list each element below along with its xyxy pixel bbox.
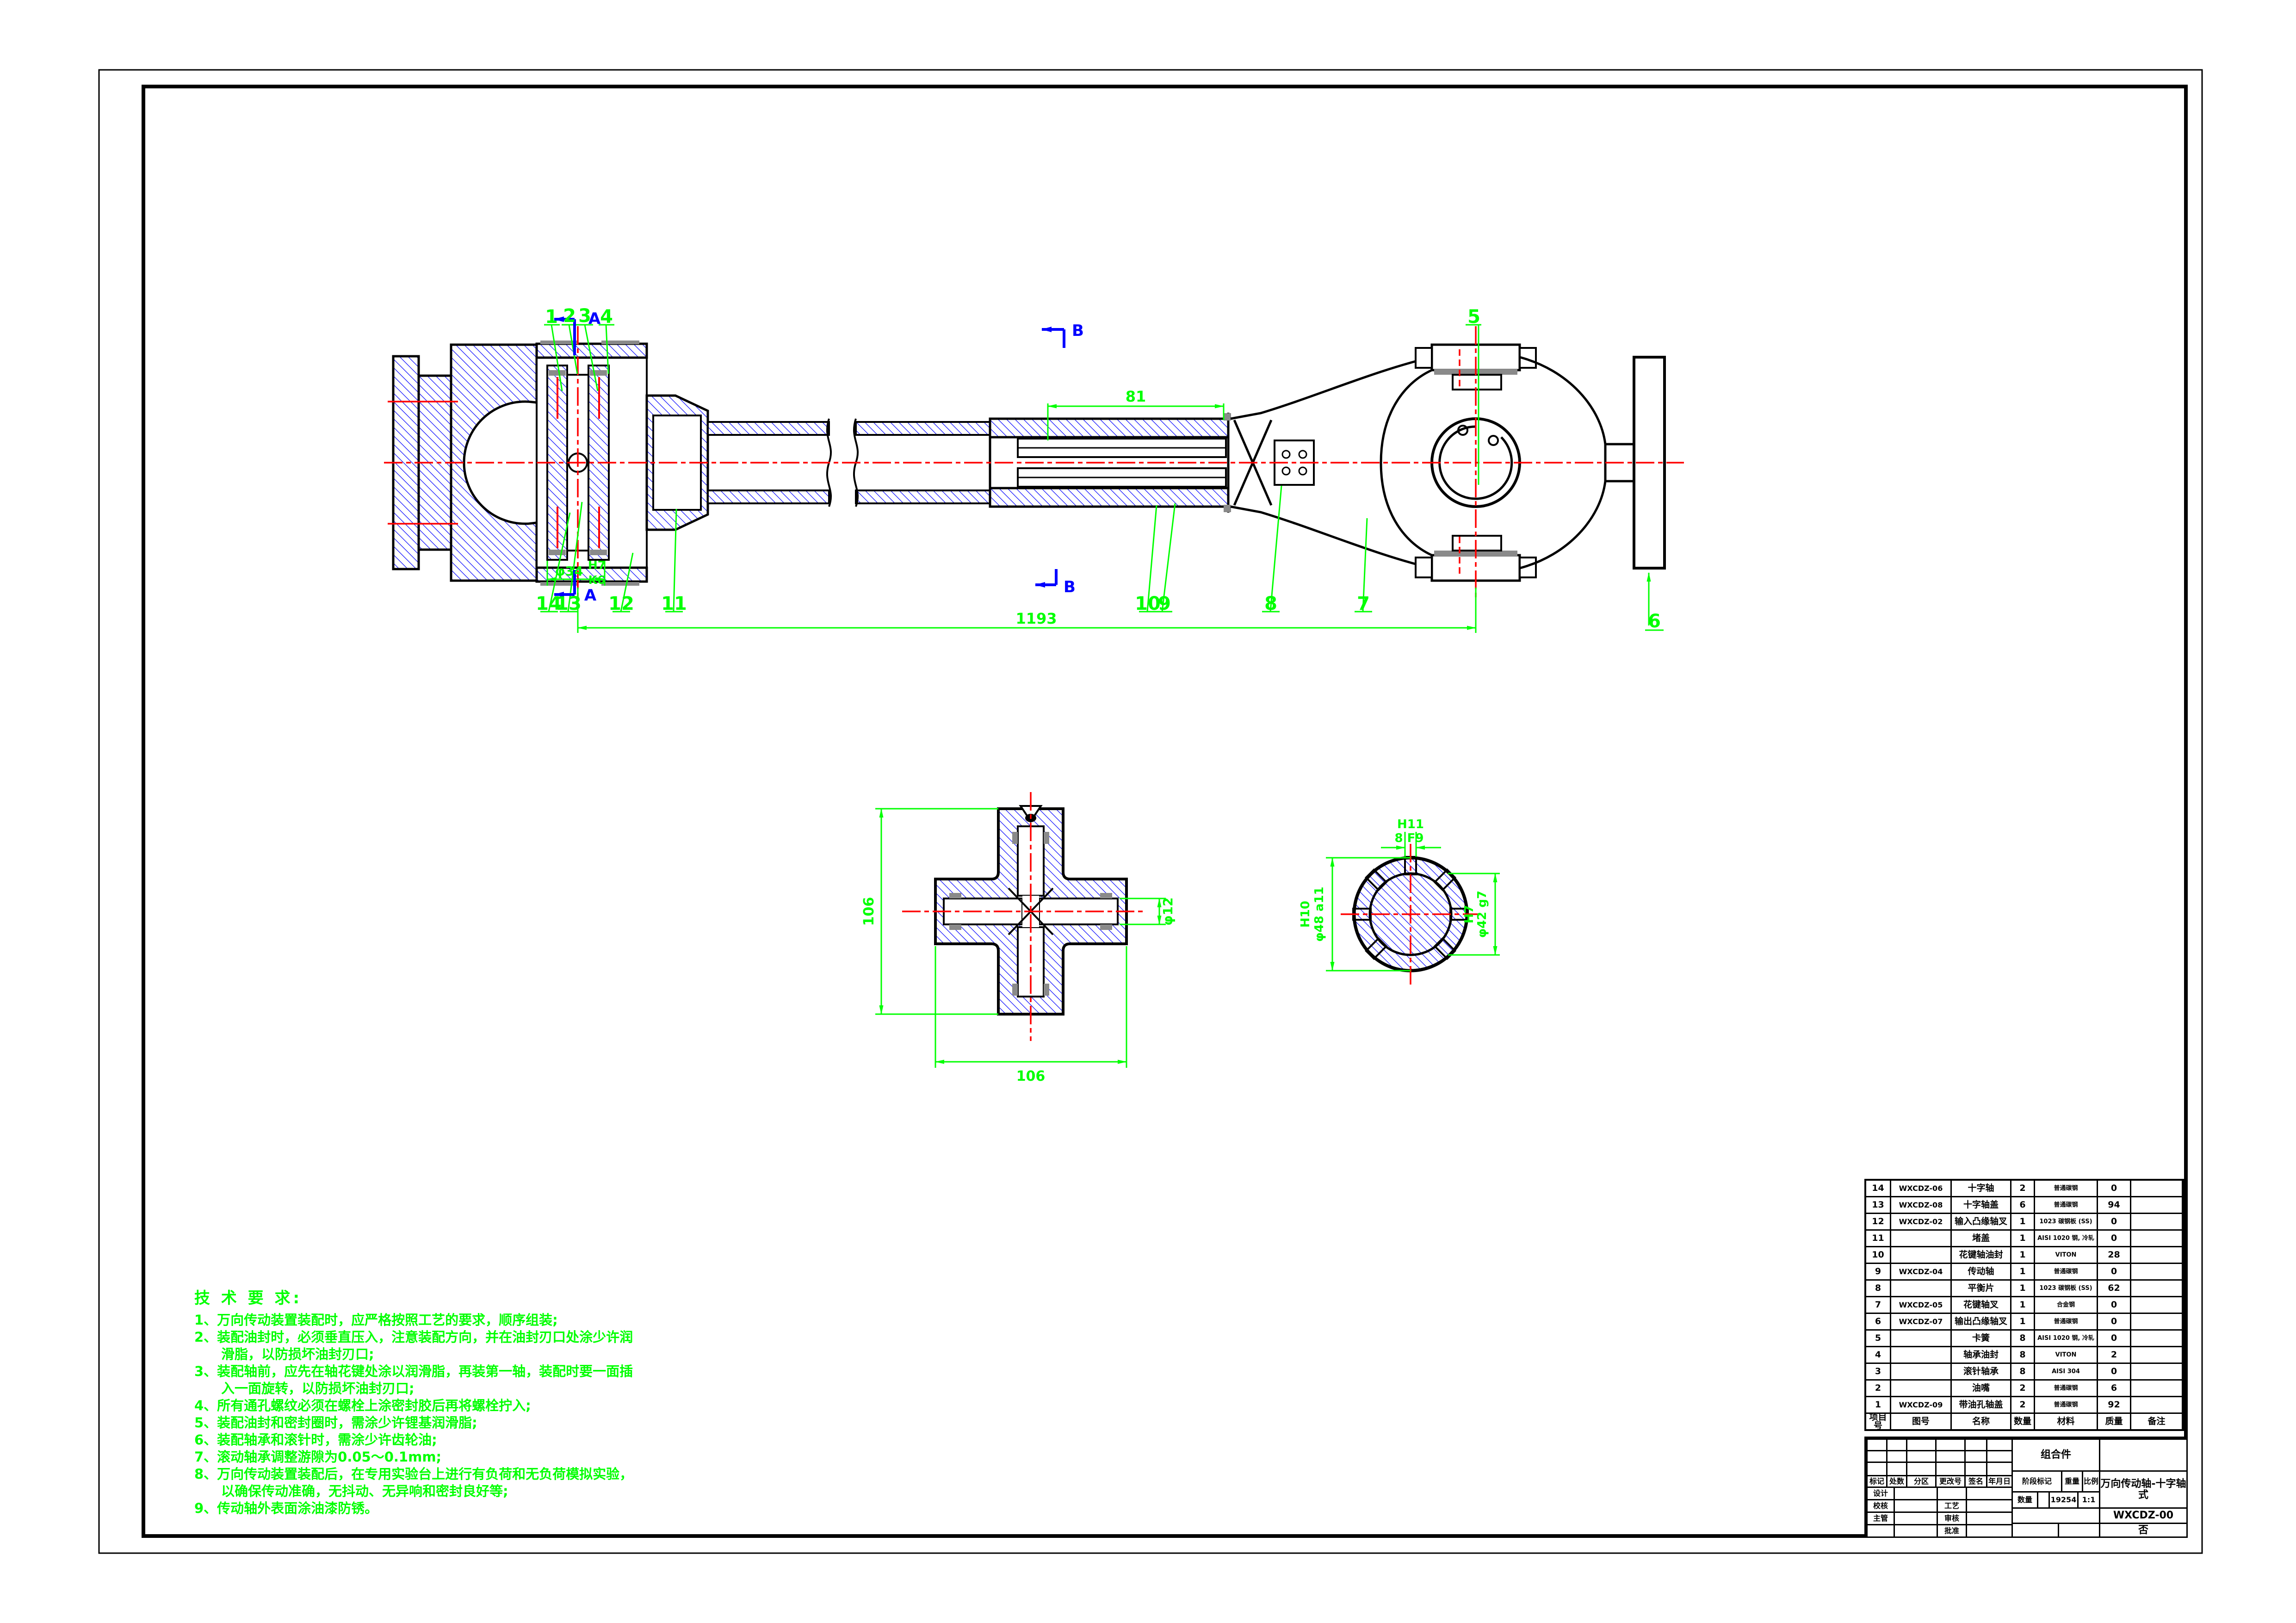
tech-item: 3、装配轴前，应先在轴花键处涂以润滑脂，再装第一轴，装配时要一面插入一面旋转，以… [194,1363,638,1397]
label-qty: 数量 [2011,1491,2038,1509]
bom-cell: 2 [2098,1347,2130,1363]
assembly-type: 组合件 [2011,1438,2100,1472]
label-design: 设计 [1866,1487,1895,1500]
label-change-no: 更改号 [1935,1475,1966,1488]
bom-cell [2131,1247,2182,1263]
bom-cell: 2 [2011,1397,2034,1412]
bom-cell: 94 [2098,1197,2130,1213]
bom-cell: 6 [2011,1197,2034,1213]
bom-cell: 输入凸缘轴叉 [1952,1214,2010,1229]
bom-cell [1891,1347,1950,1363]
bom-cell: 1 [2011,1281,2034,1296]
bom-cell: 8 [1866,1281,1890,1296]
bom-cell: 0 [2098,1181,2130,1196]
bom-cell: 传动轴 [1952,1264,2010,1279]
bom-cell: 1 [2011,1214,2034,1229]
dim-section-top-fit: H11 [1397,818,1424,831]
bom-cell: 0 [2098,1214,2130,1229]
bom-cell: 带油孔轴盖 [1952,1397,2010,1412]
dim-cross-vertical: 106 [861,897,877,926]
bom-cell: WXCDZ-04 [1891,1264,1950,1279]
revision-cell [1886,1462,1907,1476]
revision-cell [1935,1438,1966,1451]
bom-cell: AISI 1020 钢, 冷轧 [2035,1331,2097,1346]
bom-cell: 1 [2011,1231,2034,1246]
bom-cell: WXCDZ-08 [1891,1197,1950,1213]
sheet-flag: 否 [2099,1523,2188,1538]
bom-cell [1891,1331,1950,1346]
revision-cell [1866,1438,1888,1451]
section-a-bottom: A [584,586,597,605]
bom-cell: WXCDZ-07 [1891,1314,1950,1329]
bom-cell: 8 [2011,1364,2034,1379]
balloon-6: 6 [1648,611,1661,632]
bom-cell: AISI 1020 钢, 冷轧 [2035,1231,2097,1246]
bom-cell [2131,1314,2182,1329]
bom-cell: 7 [1866,1297,1890,1313]
bom-cell [1891,1281,1950,1296]
bom-cell: AISI 304 [2035,1364,2097,1379]
revision-cell [1986,1462,2013,1476]
balloon-13: 13 [556,593,582,614]
tb-empty-cell [2099,1438,2188,1472]
bom-cell: 0 [2098,1231,2130,1246]
label-mark: 标记 [1866,1475,1888,1488]
spline-section-view [1341,844,1480,985]
dim-cross-horizontal: 106 [1016,1068,1046,1084]
bom-cell: VITON [2035,1247,2097,1263]
bom-cell: WXCDZ-02 [1891,1214,1950,1229]
bom-cell: 8 [2011,1347,2034,1363]
dim-spline-length: 81 [1126,388,1146,405]
technical-requirements: 技 术 要 求: 1、万向传动装置装配时，应严格按照工艺的要求，顺序组装; 2、… [194,1285,638,1517]
sig-cell [1937,1487,1967,1500]
bom-cell [1891,1247,1950,1263]
bom-cell: 9 [1866,1264,1890,1279]
bom-header-mass: 质量 [2098,1414,2130,1429]
tech-item: 6、装配轴承和滚针时，需涂少许齿轮油; [194,1431,638,1449]
bom-cell: 2 [2011,1181,2034,1196]
tech-item: 1、万向传动装置装配时，应严格按照工艺的要求，顺序组装; [194,1312,638,1329]
bom-cell: 92 [2098,1397,2130,1412]
bom-cell: 1 [2011,1314,2034,1329]
bom-header-name: 名称 [1952,1414,2010,1429]
bom-cell [1891,1381,1950,1396]
bom-cell: 0 [2098,1364,2130,1379]
dim-bore-fit-bot: K6 [588,573,606,587]
bom-cell [2131,1297,2182,1313]
balloon-9: 9 [1158,593,1171,614]
weight-value: 19254 [2048,1491,2079,1509]
bom-cell: 2 [1866,1381,1890,1396]
bom-cell: 0 [2098,1264,2130,1279]
bom-cell: 合金钢 [2035,1297,2097,1313]
dim-bore: φ34 [555,564,583,579]
bom-cell [2131,1231,2182,1246]
bom-cell: 轴承油封 [1952,1347,2010,1363]
bom-cell: 0 [2098,1331,2130,1346]
tb-empty-cell [2058,1523,2100,1538]
bom-cell: 普通碳钢 [2035,1264,2097,1279]
balloon-11: 11 [661,593,687,614]
main-assembly-view [384,326,1684,599]
bom-cell: 普通碳钢 [2035,1397,2097,1412]
revision-cell [1886,1450,1907,1463]
revision-cell [1906,1462,1937,1476]
balloon-1: 1 [545,306,558,328]
tech-requirements-title: 技 术 要 求: [194,1285,638,1308]
bom-header-note: 备注 [2131,1414,2182,1429]
bom-cell: 4 [1866,1347,1890,1363]
revision-cell [1935,1450,1966,1463]
revision-cell [1935,1462,1966,1476]
bom-cell: 6 [1866,1314,1890,1329]
revision-cell [1986,1450,2013,1463]
bom-cell: WXCDZ-09 [1891,1397,1950,1412]
tech-item: 9、传动轴外表面涂油漆防锈。 [194,1500,638,1517]
revision-cell [1986,1438,2013,1451]
bom-header-item-no: 项目号 [1866,1414,1890,1429]
section-b-top: B [1072,322,1084,340]
bom-cell [2131,1197,2182,1213]
revision-cell [1866,1450,1888,1463]
qty-value [2037,1491,2050,1509]
label-audit: 审核 [1937,1511,1967,1525]
bom-cell: 5 [1866,1331,1890,1346]
drawing-title: 万向传动轴-十字轴式 [2099,1470,2188,1509]
bom-cell: VITON [2035,1347,2097,1363]
revision-cell [1906,1450,1937,1463]
bom-cell [2131,1364,2182,1379]
bom-cell: 十字轴 [1952,1181,2010,1196]
balloon-10: 10 [1135,593,1161,614]
dim-total-length: 1193 [1015,610,1057,627]
tech-item: 8、万向传动装置装配后，在专用实验台上进行有负荷和无负荷模拟实验，以确保传动准确… [194,1466,638,1500]
drawing-number: WXCDZ-00 [2099,1507,2188,1524]
balloon-7: 7 [1357,593,1370,614]
tech-item: 7、滚动轴承调整游隙为0.05～0.1mm; [194,1449,638,1466]
scale-value: 1:1 [2077,1491,2100,1509]
bom-cell: 28 [2098,1247,2130,1263]
dim-section-right: φ42 g7 [1475,891,1489,938]
bom-cell: 滚针轴承 [1952,1364,2010,1379]
sig-cell [1894,1511,1938,1525]
bom-cell: 普通碳钢 [2035,1381,2097,1396]
label-check: 校核 [1866,1499,1895,1513]
bom-cell [2131,1214,2182,1229]
bom-cell: 3 [1866,1364,1890,1379]
bom-cell: 0 [2098,1314,2130,1329]
dim-bore-fit-top: H7 [588,558,606,572]
bom-cell: 0 [2098,1297,2130,1313]
label-manage: 主管 [1866,1511,1895,1525]
balloon-8: 8 [1264,593,1277,614]
bom-cell [2131,1331,2182,1346]
revision-cell [1964,1462,1987,1476]
bom-cell [2131,1281,2182,1296]
bom-cell: 花键轴叉 [1952,1297,2010,1313]
bom-cell: 卡簧 [1952,1331,2010,1346]
balloon-12: 12 [608,593,634,614]
sig-cell [1866,1524,1895,1538]
bom-cell: 10 [1866,1247,1890,1263]
bom-cell: 1023 碳钢板 (SS) [2035,1214,2097,1229]
revision-cell [1964,1450,1987,1463]
bom-cell: WXCDZ-06 [1891,1181,1950,1196]
dim-section-left: φ48 a11 [1312,886,1326,942]
cross-journal-view [902,792,1143,1041]
revision-cell [1866,1462,1888,1476]
tech-item: 5、装配油封和密封圈时，需涂少许锂基润滑脂; [194,1414,638,1431]
balloon-5: 5 [1467,306,1480,328]
bom-header-material: 材料 [2035,1414,2097,1429]
label-count: 处数 [1886,1475,1907,1488]
dim-section-right-fit: H7 [1462,905,1476,923]
bom-cell: 油嘴 [1952,1381,2010,1396]
bom-cell: 平衡片 [1952,1281,2010,1296]
section-b-bottom: B [1064,578,1076,596]
tb-empty-cell [2011,1507,2100,1524]
title-block: 标记 处数 分区 更改号 签名 年月日 设计 校核 工艺 主管 审核 批准 组合… [1864,1437,2186,1536]
balloon-2: 2 [563,305,576,327]
bom-cell: 13 [1866,1197,1890,1213]
bom-cell: 普通碳钢 [2035,1197,2097,1213]
revision-cell [1886,1438,1907,1451]
sig-cell [1966,1524,2013,1538]
bom-cell [1891,1231,1950,1246]
bom-cell: WXCDZ-05 [1891,1297,1950,1313]
revision-cell [1906,1438,1937,1451]
sig-cell [1894,1499,1938,1513]
bom-header-drawing-no: 图号 [1891,1414,1950,1429]
bom-header-qty: 数量 [2011,1414,2034,1429]
bom-cell: 12 [1866,1214,1890,1229]
sig-cell [1894,1524,1938,1538]
cad-drawing-page: { "colors": {"outline":"#000000","hatch"… [0,0,2296,1623]
bom-cell: 8 [2011,1331,2034,1346]
section-a-top: A [588,310,601,328]
bom-cell [2131,1397,2182,1412]
bom-cell: 1023 碳钢板 (SS) [2035,1281,2097,1296]
sig-cell [1966,1487,2013,1500]
dim-section-top: 8 F9 [1395,831,1424,845]
bom-cell: 普通碳钢 [2035,1181,2097,1196]
bom-cell: 输出凸缘轴叉 [1952,1314,2010,1329]
bom-cell: 2 [2011,1381,2034,1396]
tech-item: 4、所有通孔螺纹必须在螺栓上涂密封胶后再将螺栓拧入; [194,1397,638,1414]
tb-empty-cell [2011,1523,2059,1538]
bom-cell: 1 [2011,1264,2034,1279]
bom-cell: 11 [1866,1231,1890,1246]
label-scale: 比例 [2082,1470,2100,1493]
revision-cell [1964,1438,1987,1451]
sig-cell [1966,1511,2013,1525]
bom-cell: 62 [2098,1281,2130,1296]
bom-cell [2131,1381,2182,1396]
label-stage-mark: 阶段标记 [2011,1470,2062,1493]
balloon-4: 4 [600,306,613,328]
bom-cell [2131,1347,2182,1363]
dim-section-left-fit: H10 [1299,901,1312,928]
bom-cell: 十字轴盖 [1952,1197,2010,1213]
dim-cross-bore: φ12 [1160,898,1176,926]
bom-table: 14WXCDZ-06十字轴2普通碳钢0 13WXCDZ-08十字轴盖6普通碳钢9… [1864,1179,2186,1431]
tech-item: 2、装配油封时，必须垂直压入，注意装配方向，并在油封刃口处涂少许润滑脂，以防损坏… [194,1329,638,1363]
label-process: 工艺 [1937,1499,1967,1513]
bom-cell: 1 [2011,1297,2034,1313]
bom-cell: 1 [2011,1247,2034,1263]
sig-cell [1894,1487,1938,1500]
sig-cell [1966,1499,2013,1513]
bom-cell [2131,1181,2182,1196]
label-approve: 批准 [1937,1524,1967,1538]
bom-cell: 14 [1866,1181,1890,1196]
bom-cell [1891,1364,1950,1379]
bom-cell: 6 [2098,1381,2130,1396]
bom-cell: 普通碳钢 [2035,1314,2097,1329]
bom-cell: 花键轴油封 [1952,1247,2010,1263]
bom-cell: 堵盖 [1952,1231,2010,1246]
label-weight: 重量 [2061,1470,2083,1493]
bom-cell [2131,1264,2182,1279]
label-date: 年月日 [1986,1475,2013,1488]
label-sign: 签名 [1964,1475,1987,1488]
bom-cell: 1 [1866,1397,1890,1412]
label-zone: 分区 [1906,1475,1937,1488]
